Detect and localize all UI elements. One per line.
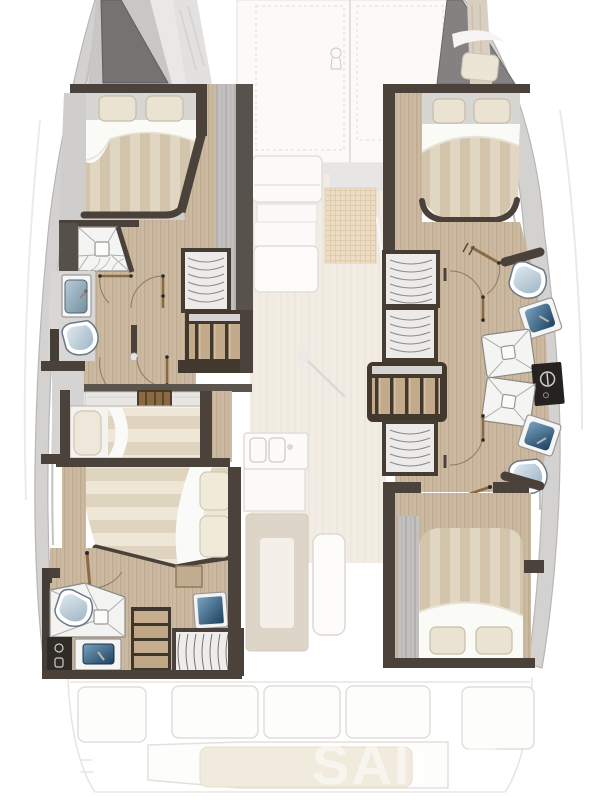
svg-text:SAILID: SAILID bbox=[312, 733, 508, 796]
